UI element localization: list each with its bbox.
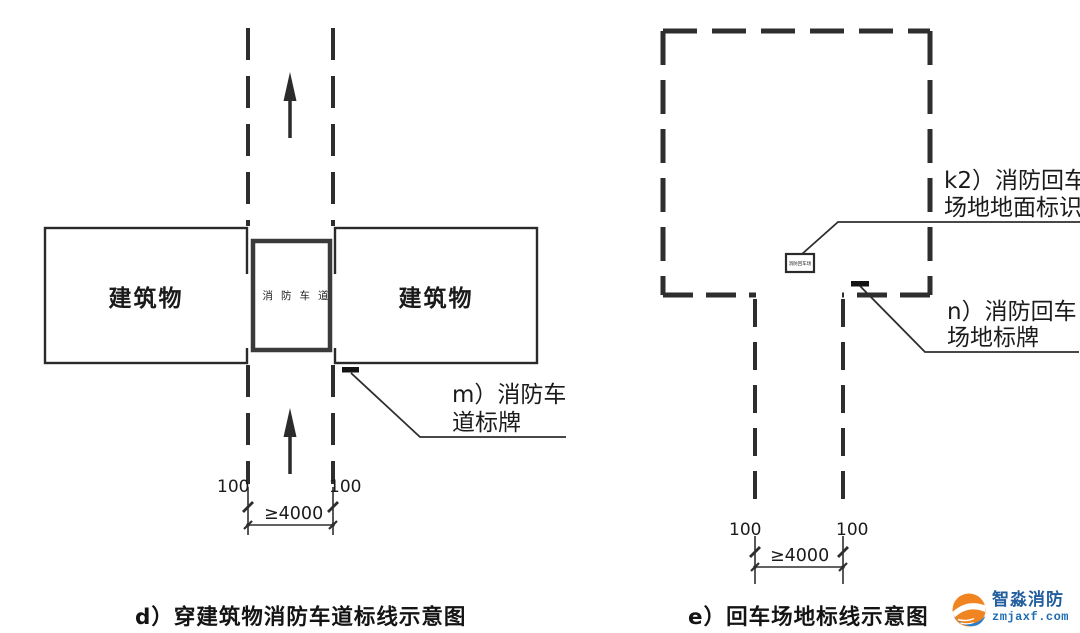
turnaround-sign-callout-line2: 场地标牌 (947, 325, 1077, 351)
caption-diagram-e: e）回车场地标线示意图 (688, 600, 929, 631)
fire-lane-sign-callout: m）消防车 道标牌 (452, 382, 566, 437)
fire-lane-box-label: 消防车道 (253, 241, 338, 350)
dim-d-100-left: 100 (217, 477, 249, 497)
diagram-e-road-dashed-lines (755, 299, 843, 514)
dim-e-road-width: ≥4000 (770, 546, 829, 566)
logo-title: 智淼消防 (992, 591, 1069, 610)
logo-swirl-icon (950, 591, 988, 629)
fire-lane-marking-figure: 消防回车场 建筑物 建筑物 消防车道 m）消防车 道标牌 100 100 ≥40… (0, 0, 1080, 633)
dim-e-100-right: 100 (836, 520, 868, 540)
fire-lane-sign-callout-line2: 道标牌 (452, 410, 566, 438)
fire-lane-sign-callout-line1: m）消防车 (452, 382, 566, 410)
ground-marking-callout-line2: 场地地面标识 (944, 195, 1080, 222)
caption-diagram-d: d）穿建筑物消防车道标线示意图 (135, 600, 466, 631)
turnaround-sign-callout: n）消防回车 场地标牌 (947, 299, 1077, 351)
diagram-d-direction-arrow-top (284, 72, 297, 138)
diagram-d-direction-arrow-bottom (284, 408, 297, 474)
building-right-label: 建筑物 (335, 228, 537, 363)
ground-marking-callout: k2）消防回车 场地地面标识 (944, 168, 1080, 222)
ground-marking-leader-line (802, 222, 1080, 254)
building-left-label: 建筑物 (45, 228, 247, 363)
turnaround-sign-mark (851, 281, 869, 287)
logo-domain: zmjaxf.com (992, 610, 1069, 625)
ground-marking-callout-line1: k2）消防回车 (944, 168, 1080, 195)
fire-lane-sign-mark (342, 367, 359, 373)
dim-e-100-left: 100 (729, 520, 761, 540)
ground-marking-box-text: 消防回车场 (789, 260, 812, 267)
dim-d-100-right: 100 (329, 477, 361, 497)
turnaround-sign-callout-line1: n）消防回车 (947, 299, 1077, 325)
dim-d-road-width: ≥4000 (264, 504, 323, 524)
watermark-logo: 智淼消防 zmjaxf.com (950, 591, 1069, 629)
